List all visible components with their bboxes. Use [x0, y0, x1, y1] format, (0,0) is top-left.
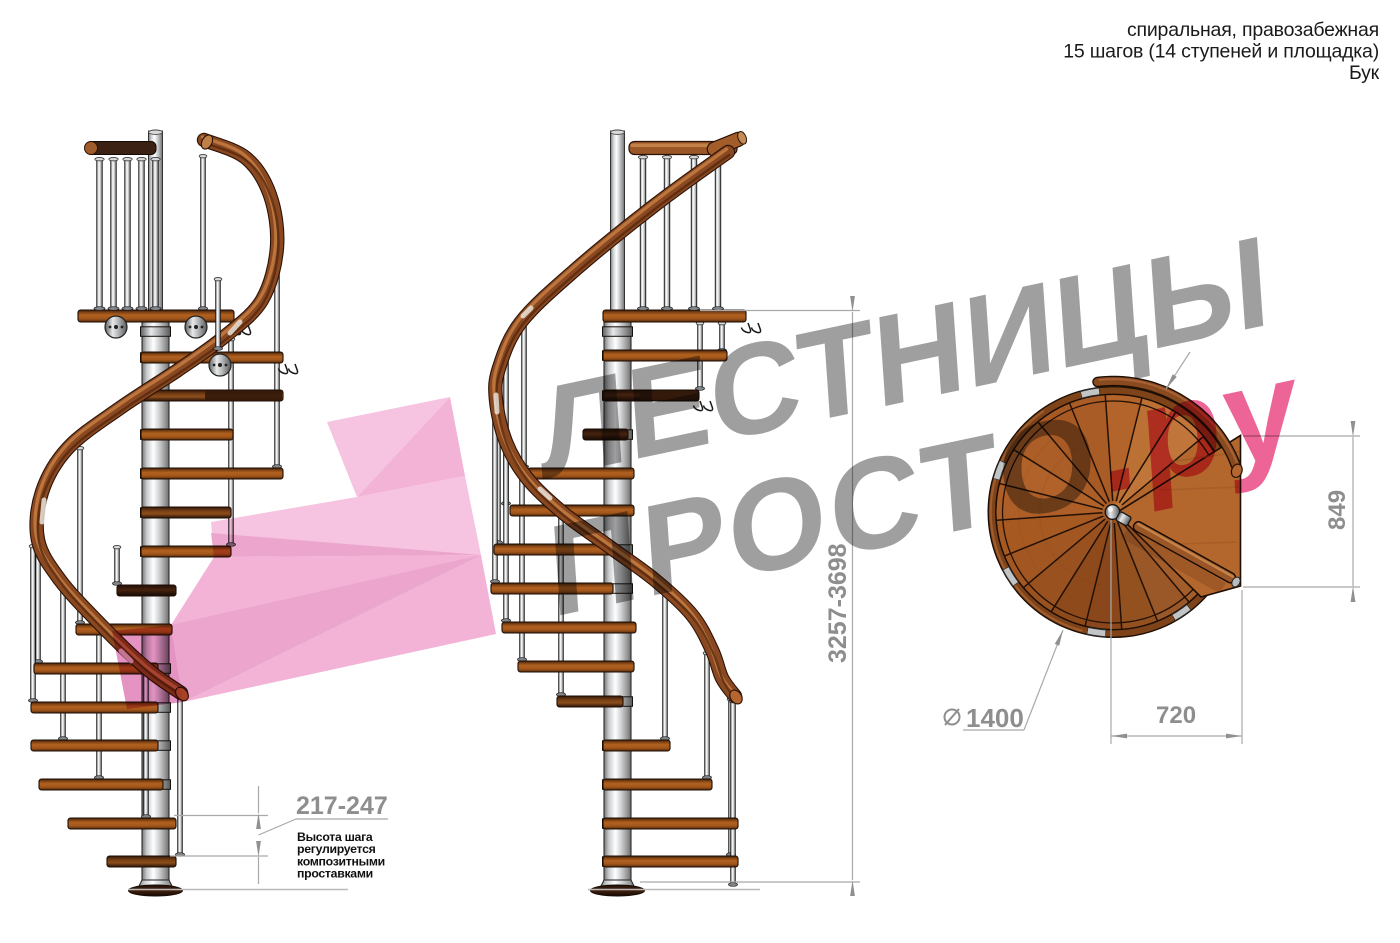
svg-text:спиральная, правозабежная: спиральная, правозабежная — [1127, 19, 1379, 41]
svg-text:217-247: 217-247 — [296, 792, 388, 820]
svg-text:849: 849 — [1324, 490, 1351, 530]
svg-text:Бук: Бук — [1349, 62, 1380, 84]
svg-text:720: 720 — [1156, 702, 1196, 729]
svg-text:15 шагов (14 ступеней и площад: 15 шагов (14 ступеней и площадка) — [1063, 41, 1379, 63]
svg-text:1400: 1400 — [966, 703, 1024, 733]
svg-text:проставками: проставками — [297, 867, 373, 881]
